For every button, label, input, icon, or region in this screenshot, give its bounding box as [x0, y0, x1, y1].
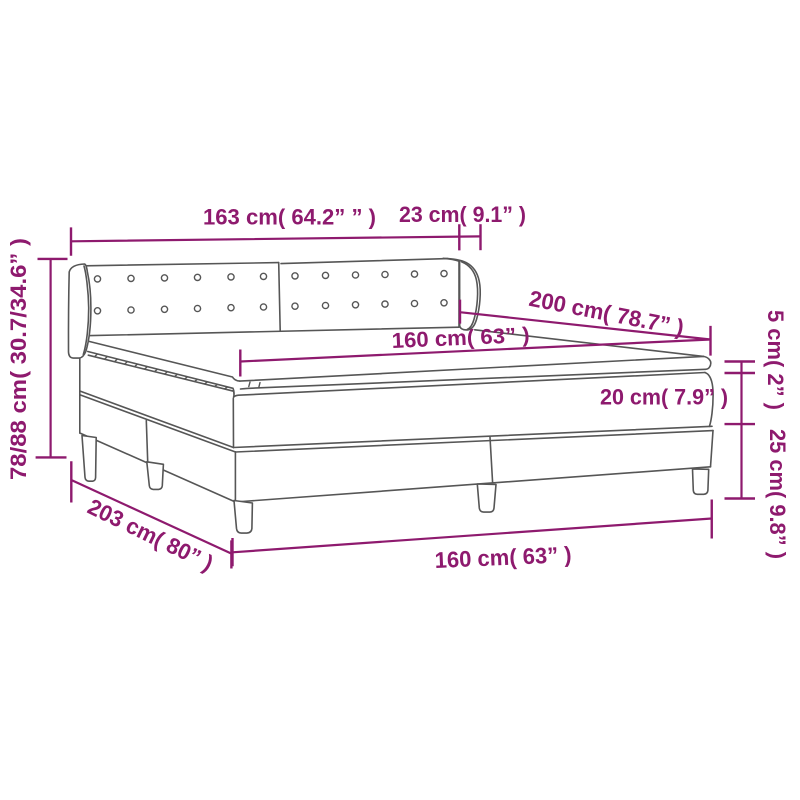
svg-text:25 cm( 9.8” ): 25 cm( 9.8” ): [765, 429, 790, 559]
svg-text:5 cm( 2” ): 5 cm( 2” ): [763, 310, 788, 410]
svg-text:20 cm( 7.9” ): 20 cm( 7.9” ): [600, 385, 728, 410]
svg-text:78/88 cm( 30.7/34.6” ): 78/88 cm( 30.7/34.6” ): [6, 238, 31, 480]
svg-text:163 cm( 64.2” ” ): 163 cm( 64.2” ” ): [203, 205, 376, 230]
svg-text:23 cm( 9.1” ): 23 cm( 9.1” ): [399, 202, 526, 227]
